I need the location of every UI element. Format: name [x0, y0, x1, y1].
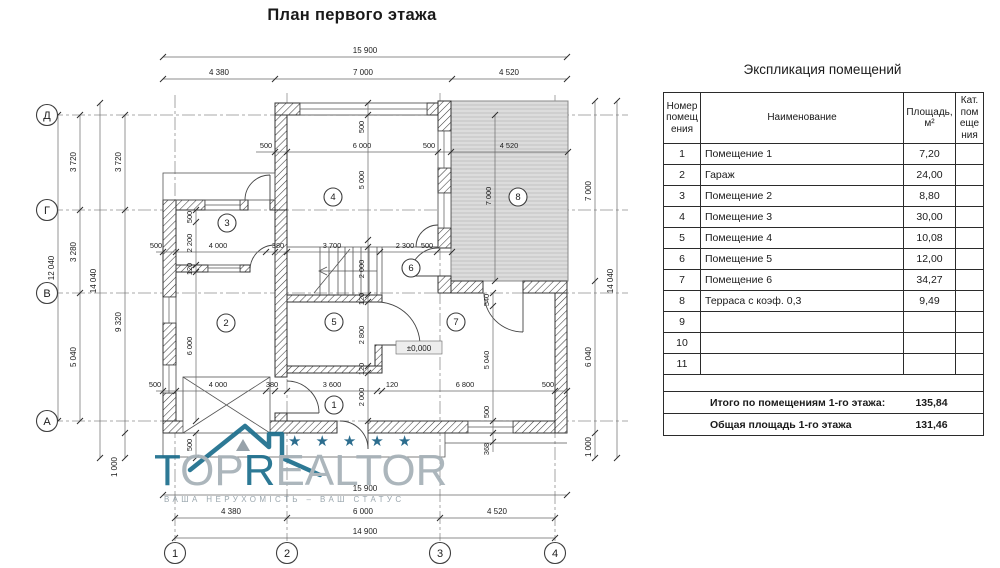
svg-text:6: 6: [408, 263, 413, 274]
dim-label: 5 040: [69, 346, 78, 367]
dim-label: 2 300: [396, 241, 415, 250]
dim-label: 380: [266, 380, 278, 389]
table-row: 1Помещение 17,20: [664, 144, 984, 165]
room-number: 8: [664, 291, 701, 312]
dim-label: 14 040: [606, 268, 615, 293]
room-category: [956, 186, 984, 207]
dim-label: 4 000: [209, 241, 228, 250]
room-number: 4: [664, 207, 701, 228]
dim-label: 500: [542, 380, 554, 389]
dim-label: 14 900: [353, 527, 378, 536]
axis-marker: А: [37, 411, 58, 432]
room-category: [956, 228, 984, 249]
dim-label: 120: [386, 380, 398, 389]
axis-marker: Д: [37, 105, 58, 126]
dim-label: 2 800: [357, 326, 366, 345]
axis-marker: 1: [165, 543, 186, 564]
dim-label: 3 720: [69, 151, 78, 172]
dim-label: 6 800: [456, 380, 475, 389]
total-rooms-row: Итого по помещениям 1-го этажа:135,84: [664, 392, 984, 414]
room-marker: 8: [509, 188, 527, 206]
total-rooms-value: 135,84: [904, 397, 959, 409]
dim-label: 7 000: [484, 187, 493, 206]
room-number: 7: [664, 270, 701, 291]
room-name: Помещение 3: [701, 207, 904, 228]
svg-text:5: 5: [331, 317, 336, 328]
total-area-value: 131,46: [904, 419, 959, 431]
dim-label: 500: [421, 241, 433, 250]
dim-label: 15 900: [353, 46, 378, 55]
room-marker: 4: [324, 188, 342, 206]
room-area: 10,08: [904, 228, 956, 249]
room-marker: 1: [325, 396, 343, 414]
svg-text:8: 8: [515, 192, 520, 203]
room-area: 30,00: [904, 207, 956, 228]
dim-label: 120: [357, 293, 366, 305]
room-number: 6: [664, 249, 701, 270]
col-header-cat: Кат. помещения: [956, 93, 984, 144]
room-marker: 5: [325, 313, 343, 331]
dim-label: 500: [357, 121, 366, 133]
explication-table: Номер помещения Наименование Площадь, м²…: [663, 92, 984, 436]
axis-marker: 4: [545, 543, 566, 564]
dim-label: 4 380: [209, 68, 230, 77]
dim-label: 14 040: [89, 268, 98, 293]
dim-label: 7 000: [584, 180, 593, 201]
dim-label: 500: [482, 406, 491, 418]
dim-label: 2 000: [357, 260, 366, 279]
dim-label: 4 520: [500, 141, 519, 150]
table-row: 11: [664, 354, 984, 375]
room-area: [904, 333, 956, 354]
svg-text:1: 1: [172, 548, 178, 560]
dim-label: 4 000: [209, 380, 228, 389]
table-title: Экспликация помещений: [660, 62, 985, 77]
room-marker: 7: [447, 313, 465, 331]
dim-label: 1 000: [110, 456, 119, 477]
level-mark: ±0,000: [396, 341, 442, 354]
dim-label: 12 040: [47, 255, 56, 280]
room-number: 1: [664, 144, 701, 165]
svg-text:3: 3: [224, 218, 229, 229]
dim-label: 500: [149, 380, 161, 389]
dim-label: 368: [482, 443, 491, 455]
room-category: [956, 312, 984, 333]
room-category: [956, 249, 984, 270]
room-name: Помещение 1: [701, 144, 904, 165]
dim-label: 120: [357, 363, 366, 375]
table-row: 10: [664, 333, 984, 354]
room-category: [956, 207, 984, 228]
dim-label: 4 520: [487, 507, 508, 516]
room-area: 34,27: [904, 270, 956, 291]
room-area: 8,80: [904, 186, 956, 207]
col-header-area: Площадь, м²: [904, 93, 956, 144]
table-row: 4Помещение 330,00: [664, 207, 984, 228]
room-category: [956, 270, 984, 291]
dim-label: 3 720: [114, 151, 123, 172]
room-name: Помещение 6: [701, 270, 904, 291]
dim-label: 4 520: [499, 68, 520, 77]
dim-label: 7 000: [353, 68, 374, 77]
dim-label: 500: [150, 241, 162, 250]
total-rooms-label: Итого по помещениям 1-го этажа:: [668, 397, 885, 409]
dim-label: 500: [185, 439, 194, 451]
room-number: 9: [664, 312, 701, 333]
drawing-sheet: План первого этажа: [0, 0, 1000, 568]
dim-label: 120: [185, 263, 194, 275]
room-number: 11: [664, 354, 701, 375]
dim-label: 4 380: [221, 507, 242, 516]
room-category: [956, 333, 984, 354]
room-name: [701, 333, 904, 354]
room-area: 7,20: [904, 144, 956, 165]
room-marker: 6: [402, 259, 420, 277]
dim-label: 15 900: [353, 484, 378, 493]
dim-label: 3 280: [69, 241, 78, 262]
room-area: [904, 312, 956, 333]
svg-text:2: 2: [223, 318, 228, 329]
dim-label: 380: [272, 241, 284, 250]
dim-label: 6 000: [185, 337, 194, 356]
axis-marker: 2: [277, 543, 298, 564]
dim-label: 2 200: [185, 234, 194, 253]
dim-label: 500: [260, 141, 272, 150]
table-header-row: Номер помещения Наименование Площадь, м²…: [664, 93, 984, 144]
total-area-label: Общая площадь 1-го этажа: [668, 419, 852, 431]
svg-text:4: 4: [330, 192, 335, 203]
room-name: [701, 354, 904, 375]
floor-plan: ±0,000 15 900 4 380 7 000 4 520 15 900 4…: [0, 0, 660, 568]
col-header-number: Номер помещения: [664, 93, 701, 144]
svg-text:А: А: [43, 416, 51, 428]
room-category: [956, 165, 984, 186]
table-row: 9: [664, 312, 984, 333]
table-row: 5Помещение 410,08: [664, 228, 984, 249]
room-area: 9,49: [904, 291, 956, 312]
svg-text:3: 3: [437, 548, 443, 560]
room-category: [956, 144, 984, 165]
room-name: Помещение 4: [701, 228, 904, 249]
room-area: 24,00: [904, 165, 956, 186]
room-area: 12,00: [904, 249, 956, 270]
svg-text:Г: Г: [44, 205, 50, 217]
room-name: Помещение 5: [701, 249, 904, 270]
room-name: [701, 312, 904, 333]
room-number: 2: [664, 165, 701, 186]
table-row: 8Терраса с коэф. 0,39,49: [664, 291, 984, 312]
room-name: Терраса с коэф. 0,3: [701, 291, 904, 312]
level-label: ±0,000: [407, 344, 432, 353]
dim-label: 6 040: [584, 346, 593, 367]
dim-label: 500: [185, 211, 194, 223]
svg-text:1: 1: [331, 400, 336, 411]
dim-label: 5 040: [482, 351, 491, 370]
room-name: Помещение 2: [701, 186, 904, 207]
room-number: 3: [664, 186, 701, 207]
room-category: [956, 354, 984, 375]
spacer-row: [664, 375, 984, 392]
dim-label: 5 000: [357, 171, 366, 190]
terrace-area: [451, 101, 568, 281]
dim-label: 3 700: [323, 241, 342, 250]
svg-text:2: 2: [284, 548, 290, 560]
room-area: [904, 354, 956, 375]
axis-marker: Г: [37, 200, 58, 221]
room-marker: 2: [217, 314, 235, 332]
axis-marker: 3: [430, 543, 451, 564]
dim-label: 1 000: [584, 436, 593, 457]
table-row: 3Помещение 28,80: [664, 186, 984, 207]
total-area-row: Общая площадь 1-го этажа131,46: [664, 414, 984, 436]
svg-text:4: 4: [552, 548, 558, 560]
dim-label: 2 000: [357, 388, 366, 407]
dim-label: 3 600: [323, 380, 342, 389]
room-name: Гараж: [701, 165, 904, 186]
explication-section: Экспликация помещений Номер помещения На…: [660, 62, 985, 436]
room-category: [956, 291, 984, 312]
dim-label: 9 320: [114, 311, 123, 332]
svg-text:Д: Д: [43, 110, 51, 122]
dim-label: 540: [482, 294, 491, 306]
table-row: 7Помещение 634,27: [664, 270, 984, 291]
axis-marker: В: [37, 283, 58, 304]
dim-label: 6 000: [353, 141, 372, 150]
table-row: 6Помещение 512,00: [664, 249, 984, 270]
room-marker: 3: [218, 214, 236, 232]
dim-label: 6 000: [353, 507, 374, 516]
room-number: 10: [664, 333, 701, 354]
dim-label: 500: [423, 141, 435, 150]
svg-text:7: 7: [453, 317, 458, 328]
svg-text:В: В: [43, 288, 50, 300]
room-number: 5: [664, 228, 701, 249]
col-header-name: Наименование: [701, 93, 904, 144]
table-row: 2Гараж24,00: [664, 165, 984, 186]
